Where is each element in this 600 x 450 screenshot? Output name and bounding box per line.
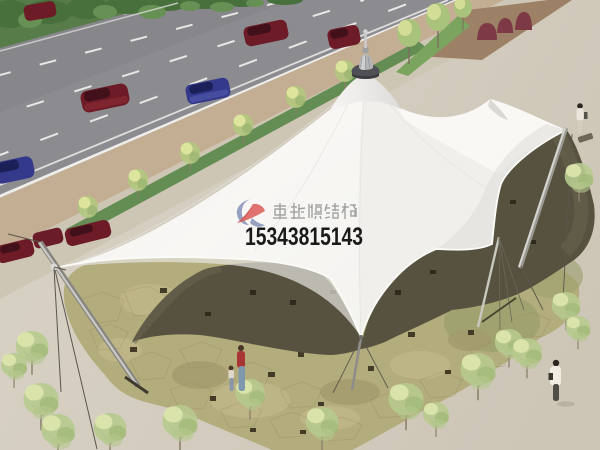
svg-text:15343815143: 15343815143 (245, 223, 363, 251)
